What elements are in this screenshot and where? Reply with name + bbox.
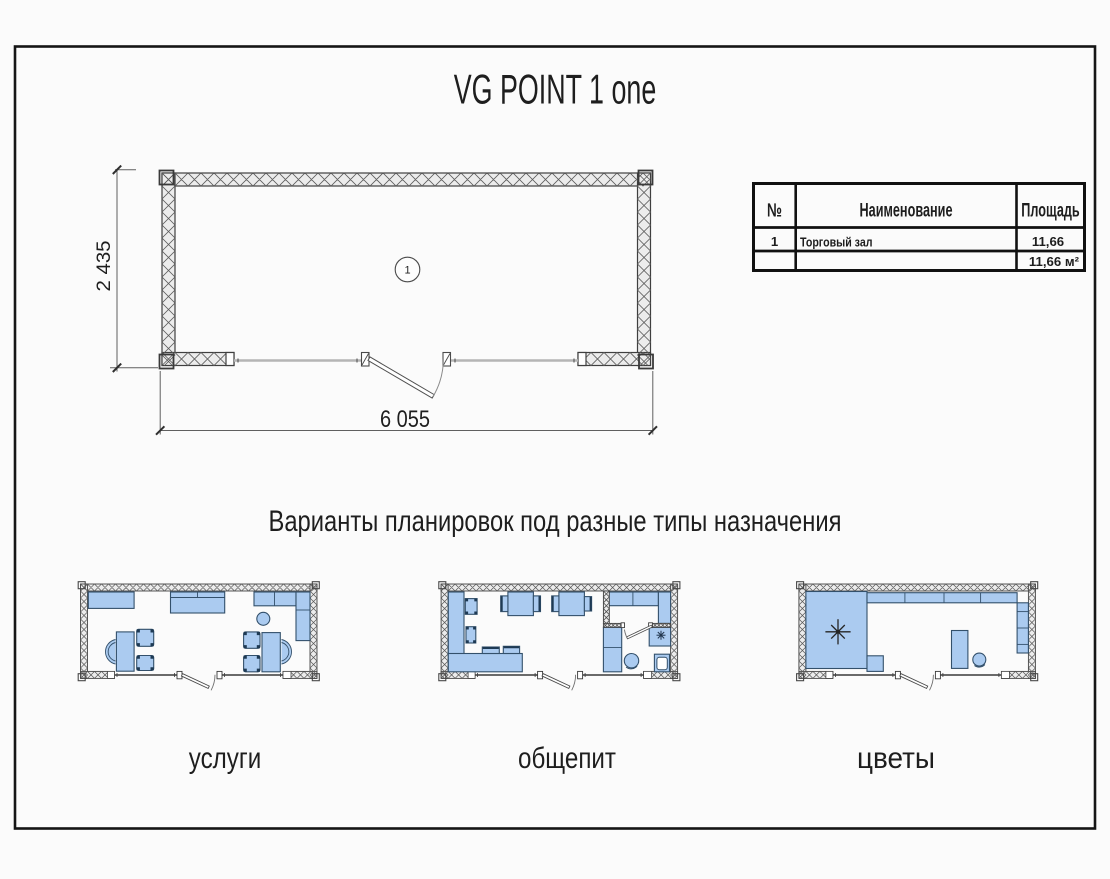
svg-text:Варианты планировок под разные: Варианты планировок под разные типы назн… <box>269 505 842 538</box>
svg-text:2 435: 2 435 <box>94 241 115 292</box>
svg-text:6 055: 6 055 <box>380 406 430 433</box>
svg-text:1: 1 <box>771 234 778 249</box>
svg-text:№: № <box>767 201 782 222</box>
svg-text:1: 1 <box>404 264 410 276</box>
svg-text:общепит: общепит <box>518 742 616 775</box>
svg-text:11,66: 11,66 <box>1032 234 1064 249</box>
svg-text:цветы: цветы <box>857 742 935 775</box>
svg-text:VG POINT 1 one: VG POINT 1 one <box>454 65 657 112</box>
svg-text:услуги: услуги <box>189 742 262 775</box>
svg-text:Торговый зал: Торговый зал <box>800 235 873 250</box>
svg-text:Площадь: Площадь <box>1021 201 1079 222</box>
svg-text:Наименование: Наименование <box>860 201 953 222</box>
svg-text:11,66 м²: 11,66 м² <box>1029 254 1080 269</box>
